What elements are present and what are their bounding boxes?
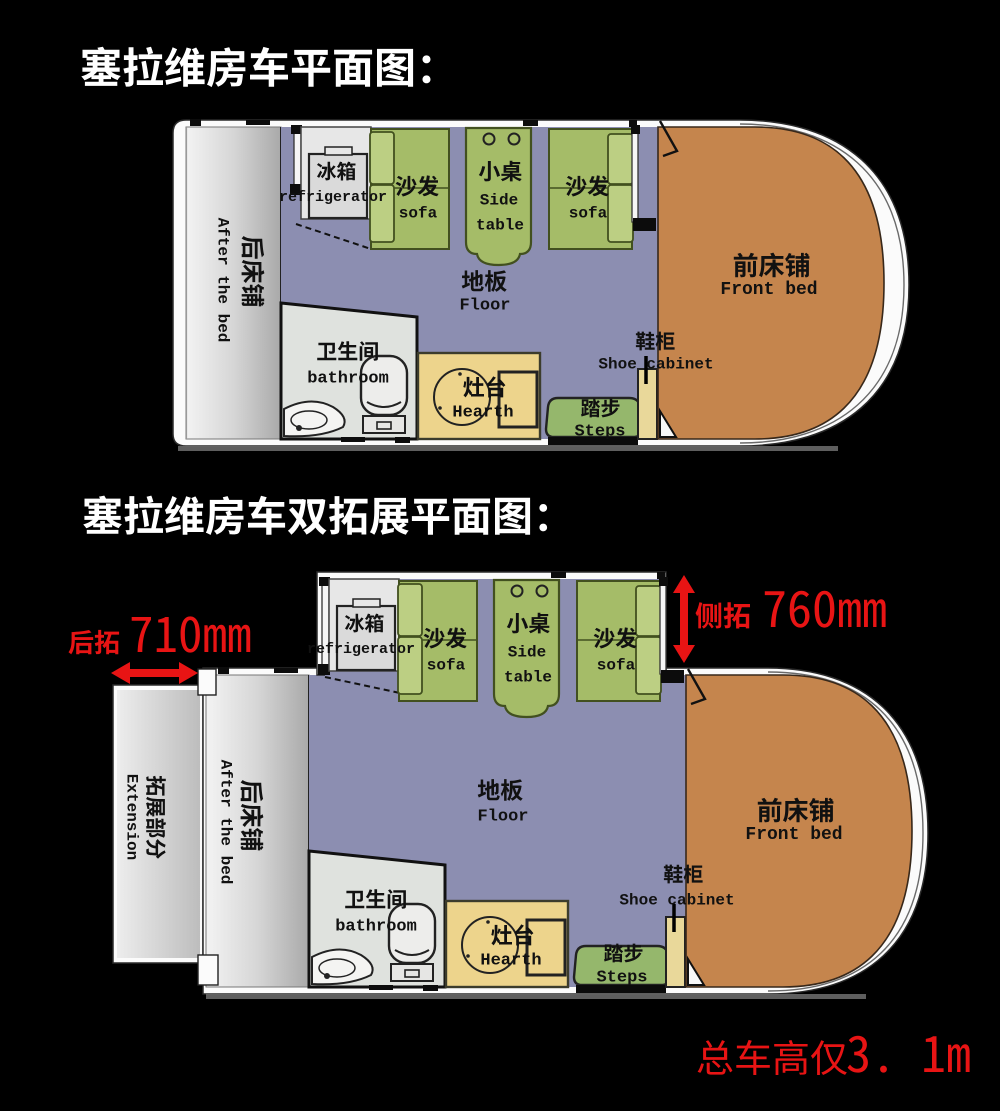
svg-text:Side: Side: [508, 643, 546, 661]
svg-text:Extension: Extension: [123, 774, 141, 860]
svg-text:Floor: Floor: [459, 297, 510, 316]
svg-text:table: table: [504, 668, 552, 686]
svg-text:sofa: sofa: [427, 656, 466, 674]
svg-text:refrigerator: refrigerator: [307, 641, 415, 658]
svg-text:Front bed: Front bed: [720, 280, 817, 300]
svg-text:bathroom: bathroom: [307, 370, 389, 389]
svg-text:sofa: sofa: [597, 656, 636, 674]
svg-text:sofa: sofa: [399, 204, 438, 222]
svg-text:Steps: Steps: [574, 423, 625, 442]
svg-text:Hearth: Hearth: [452, 404, 513, 423]
svg-text:sofa: sofa: [569, 204, 608, 222]
svg-text:table: table: [476, 216, 524, 234]
svg-text:Shoe cabinet: Shoe cabinet: [619, 891, 734, 909]
svg-text:refrigerator: refrigerator: [279, 189, 387, 206]
svg-text:After the bed: After the bed: [217, 760, 235, 885]
svg-text:After the bed: After the bed: [214, 218, 232, 343]
svg-text:Hearth: Hearth: [480, 952, 541, 971]
svg-text:Steps: Steps: [596, 969, 647, 988]
svg-text:Shoe cabinet: Shoe cabinet: [598, 355, 713, 373]
svg-text:bathroom: bathroom: [335, 918, 417, 937]
svg-text:Side: Side: [480, 191, 518, 209]
svg-text:Front bed: Front bed: [745, 825, 842, 845]
svg-text:Floor: Floor: [477, 808, 528, 827]
